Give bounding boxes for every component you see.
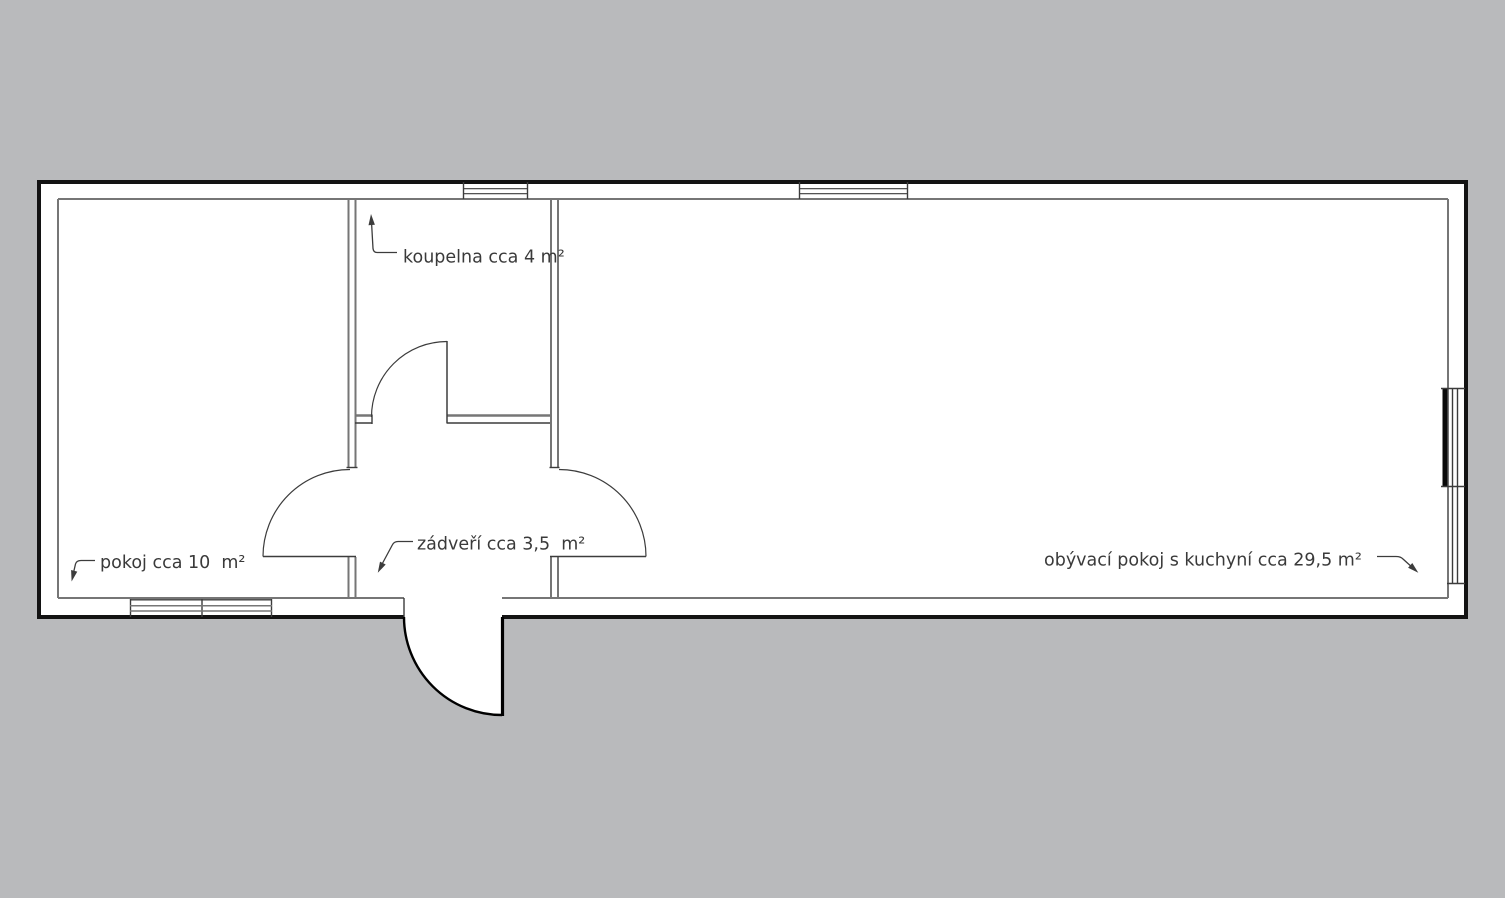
label-bathroom: koupelna cca 4 m² bbox=[403, 248, 565, 268]
balcony-door-leaf bbox=[1443, 389, 1448, 486]
entrance-wall-gap bbox=[404, 596, 502, 620]
label-living: obývací pokoj s kuchyní cca 29,5 m² bbox=[1044, 551, 1362, 571]
label-bedroom: pokoj cca 10 m² bbox=[100, 553, 245, 573]
floor-plan-drawing: koupelna cca 4 m² zádveří cca 3,5 m² pok… bbox=[0, 0, 1505, 898]
label-hallway: zádveří cca 3,5 m² bbox=[417, 535, 585, 555]
floor-plan-canvas: koupelna cca 4 m² zádveří cca 3,5 m² pok… bbox=[0, 0, 1505, 898]
